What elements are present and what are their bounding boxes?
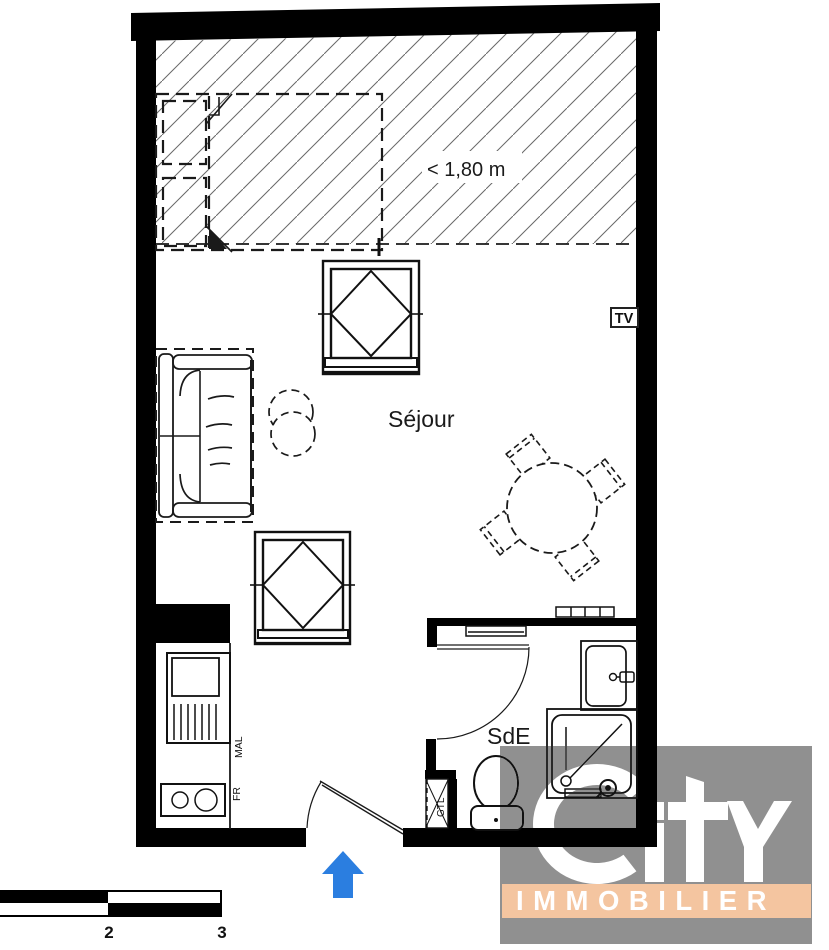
svg-text:< 1,80 m: < 1,80 m	[427, 159, 505, 181]
svg-text:2: 2	[104, 923, 113, 942]
svg-text:Séjour: Séjour	[388, 406, 455, 432]
svg-text:MAL: MAL	[233, 736, 245, 758]
svg-text:TV: TV	[615, 311, 634, 327]
svg-text:IMMOBILIER: IMMOBILIER	[516, 885, 776, 916]
svg-text:FR: FR	[231, 787, 243, 801]
svg-text:SdE: SdE	[487, 723, 530, 749]
svg-text:3: 3	[217, 923, 226, 942]
svg-text:GTL: GTL	[436, 797, 447, 817]
